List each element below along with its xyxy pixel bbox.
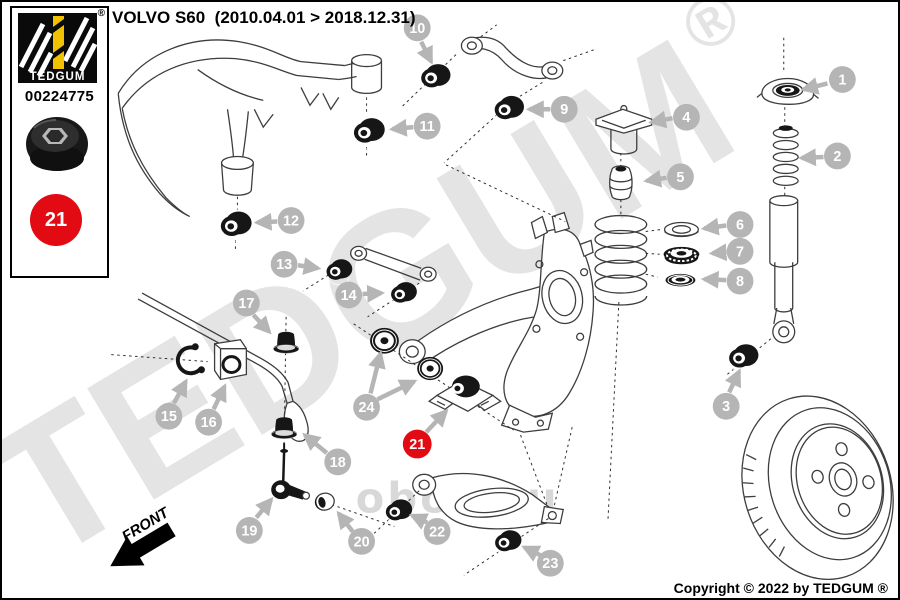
svg-text:2: 2: [833, 149, 841, 165]
svg-text:24: 24: [359, 400, 375, 416]
svg-text:12: 12: [283, 213, 299, 229]
svg-text:7: 7: [736, 244, 744, 260]
highlighted-part-badge: 21: [30, 194, 82, 246]
part-number: 00224775: [12, 88, 107, 105]
svg-text:15: 15: [161, 409, 177, 425]
bump-stop: [610, 166, 632, 200]
upper-control-arm: [461, 37, 562, 79]
svg-text:4: 4: [682, 110, 690, 126]
svg-text:14: 14: [341, 288, 357, 304]
svg-text:1: 1: [838, 72, 846, 88]
tedgum-logo: TEDGUM: [18, 13, 97, 83]
shock-boot: [773, 125, 798, 185]
callout-7: 7: [712, 238, 753, 265]
wheel-tire: [719, 376, 898, 598]
product-photo: [22, 112, 92, 176]
bushing-part-12: [221, 211, 252, 241]
parts-diagram: TEDGUM® obop.ru: [2, 2, 898, 598]
callout-19: 19: [236, 500, 271, 544]
washer-part-24a: [370, 328, 399, 354]
stabilizer-bushing-part-16: [215, 340, 247, 380]
svg-text:22: 22: [429, 524, 445, 540]
callout-1: 1: [804, 66, 856, 93]
spring-seat-ring-lower: [666, 274, 696, 287]
svg-text:3: 3: [722, 399, 730, 415]
bushing-part-11: [354, 118, 385, 148]
registered-trademark: ®: [97, 8, 106, 20]
callout-3: 3: [713, 372, 740, 420]
copyright-line: Copyright © 2022 by TEDGUM ®: [674, 580, 888, 596]
svg-text:17: 17: [238, 296, 254, 312]
callout-2: 2: [802, 143, 851, 170]
svg-text:16: 16: [201, 415, 217, 431]
callout-8: 8: [704, 268, 753, 295]
svg-text:13: 13: [276, 257, 292, 273]
dust-cap-part-20: [313, 491, 336, 512]
svg-text:6: 6: [736, 217, 744, 233]
callout-23: 23: [525, 547, 564, 576]
svg-text:5: 5: [676, 170, 684, 186]
brand-panel: ® TEDGUM 00224775 21: [10, 6, 109, 278]
spring-seat-ring-upper: [665, 223, 699, 237]
svg-text:18: 18: [330, 455, 346, 471]
svg-text:9: 9: [560, 102, 568, 118]
bushing-part-10: [421, 64, 450, 93]
callout-6: 6: [704, 211, 753, 238]
callout-21-highlighted: 21: [403, 411, 446, 458]
svg-text:11: 11: [420, 119, 435, 135]
bushing-part-23: [495, 530, 521, 556]
shock-absorber: [770, 196, 798, 343]
svg-text:23: 23: [542, 556, 558, 572]
catalog-page: TEDGUM® obop.ru: [0, 0, 900, 600]
callout-11: 11: [392, 113, 440, 140]
strut-top-mount: [757, 78, 819, 104]
svg-text:20: 20: [354, 534, 370, 550]
svg-text:8: 8: [736, 274, 744, 290]
spring-bearing: [664, 247, 700, 264]
logo-brand-text: TEDGUM: [30, 71, 86, 83]
washer-part-24b: [417, 357, 443, 380]
vehicle-title: VOLVO S60 (2010.04.01 > 2018.12.31): [112, 8, 416, 28]
svg-text:21: 21: [409, 437, 425, 453]
svg-text:19: 19: [241, 523, 257, 539]
